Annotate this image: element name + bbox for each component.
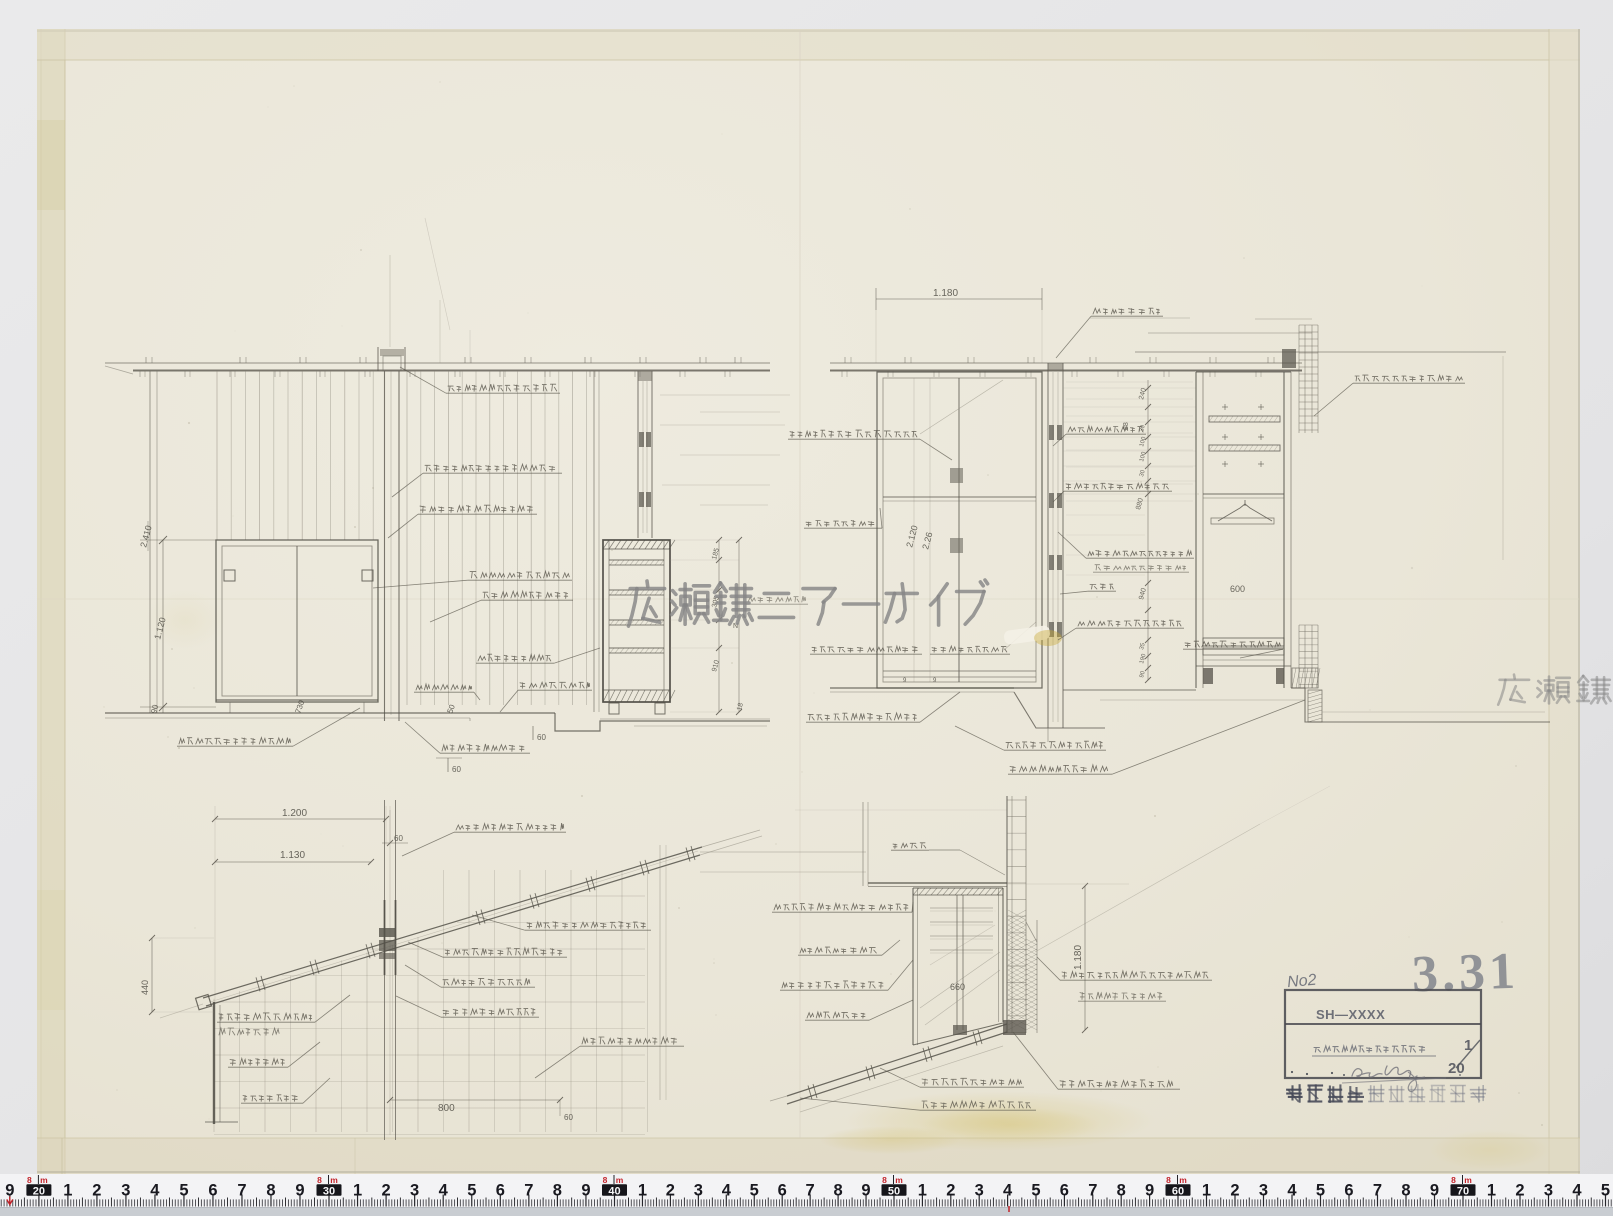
- svg-text:1.130: 1.130: [280, 850, 305, 861]
- svg-text:7: 7: [237, 1182, 246, 1200]
- svg-text:3: 3: [410, 1182, 419, 1200]
- svg-text:9: 9: [1145, 1182, 1154, 1200]
- svg-text:5: 5: [1601, 1182, 1610, 1200]
- svg-text:5: 5: [179, 1182, 188, 1200]
- svg-text:m: m: [1179, 1175, 1187, 1185]
- svg-text:8: 8: [1451, 1175, 1456, 1185]
- svg-text:m: m: [895, 1175, 903, 1185]
- svg-text:6: 6: [208, 1182, 217, 1200]
- svg-text:60: 60: [452, 765, 461, 774]
- svg-text:660: 660: [950, 982, 965, 992]
- svg-text:9: 9: [861, 1182, 870, 1200]
- svg-text:4: 4: [439, 1182, 449, 1200]
- svg-text:6: 6: [496, 1182, 505, 1200]
- svg-text:2: 2: [92, 1182, 101, 1200]
- svg-text:5: 5: [750, 1182, 759, 1200]
- svg-text:No2: No2: [1286, 972, 1317, 992]
- svg-text:m: m: [616, 1175, 624, 1185]
- svg-text:7: 7: [1373, 1182, 1382, 1200]
- svg-text:3: 3: [975, 1182, 984, 1200]
- svg-text:600: 600: [1230, 584, 1245, 594]
- svg-text:8: 8: [1401, 1182, 1410, 1200]
- svg-text:1: 1: [1487, 1182, 1496, 1200]
- svg-text:m: m: [1464, 1175, 1472, 1185]
- svg-text:8: 8: [266, 1182, 275, 1200]
- svg-text:6: 6: [778, 1182, 787, 1200]
- svg-text:5: 5: [1316, 1182, 1325, 1200]
- svg-text:60: 60: [1172, 1185, 1184, 1197]
- svg-text:3: 3: [1544, 1182, 1553, 1200]
- svg-text:2: 2: [1230, 1182, 1239, 1200]
- svg-text:9: 9: [581, 1182, 590, 1200]
- svg-text:8: 8: [1166, 1175, 1171, 1185]
- svg-text:8: 8: [882, 1175, 887, 1185]
- svg-text:6: 6: [1060, 1182, 1069, 1200]
- svg-text:4: 4: [150, 1182, 160, 1200]
- svg-text:3: 3: [1259, 1182, 1268, 1200]
- svg-text:50: 50: [888, 1185, 900, 1197]
- svg-text:1: 1: [63, 1182, 72, 1200]
- svg-text:60: 60: [537, 733, 546, 742]
- svg-text:9: 9: [295, 1182, 304, 1200]
- svg-text:800: 800: [438, 1103, 455, 1114]
- svg-text:7: 7: [524, 1182, 533, 1200]
- svg-text:3: 3: [694, 1182, 703, 1200]
- svg-text:20: 20: [33, 1185, 45, 1197]
- svg-text:3.31: 3.31: [1411, 943, 1520, 1004]
- svg-text:440: 440: [140, 980, 150, 995]
- svg-text:m: m: [40, 1175, 48, 1185]
- svg-text:4: 4: [722, 1182, 732, 1200]
- svg-text:1: 1: [638, 1182, 647, 1200]
- svg-text:1.200: 1.200: [282, 808, 307, 819]
- svg-text:8: 8: [834, 1182, 843, 1200]
- svg-text:2: 2: [666, 1182, 675, 1200]
- svg-text:7: 7: [1088, 1182, 1097, 1200]
- svg-text:6: 6: [1344, 1182, 1353, 1200]
- svg-text:8: 8: [1117, 1182, 1126, 1200]
- svg-text:1.180: 1.180: [1073, 945, 1084, 970]
- svg-text:8: 8: [603, 1175, 608, 1185]
- svg-text:70: 70: [1457, 1185, 1469, 1197]
- svg-text:40: 40: [608, 1185, 620, 1197]
- svg-text:1.180: 1.180: [933, 288, 958, 299]
- svg-text:9: 9: [1430, 1182, 1439, 1200]
- svg-text:7: 7: [806, 1182, 815, 1200]
- svg-text:30: 30: [323, 1185, 335, 1197]
- svg-text:3: 3: [121, 1182, 130, 1200]
- svg-text:SH—XXXX: SH—XXXX: [1316, 1007, 1385, 1022]
- svg-text:60: 60: [564, 1113, 573, 1122]
- svg-text:1: 1: [353, 1182, 362, 1200]
- svg-text:8: 8: [27, 1175, 32, 1185]
- svg-text:4: 4: [1287, 1182, 1297, 1200]
- svg-text:4: 4: [1003, 1182, 1013, 1200]
- svg-text:1: 1: [1202, 1182, 1211, 1200]
- svg-text:5: 5: [1031, 1182, 1040, 1200]
- svg-text:5: 5: [467, 1182, 476, 1200]
- svg-text:8: 8: [553, 1182, 562, 1200]
- svg-text:2: 2: [382, 1182, 391, 1200]
- svg-text:2: 2: [1515, 1182, 1524, 1200]
- svg-text:2: 2: [946, 1182, 955, 1200]
- svg-text:8: 8: [317, 1175, 322, 1185]
- svg-text:4: 4: [1572, 1182, 1582, 1200]
- svg-text:1: 1: [918, 1182, 927, 1200]
- svg-text:20: 20: [1448, 1060, 1465, 1077]
- svg-text:m: m: [330, 1175, 338, 1185]
